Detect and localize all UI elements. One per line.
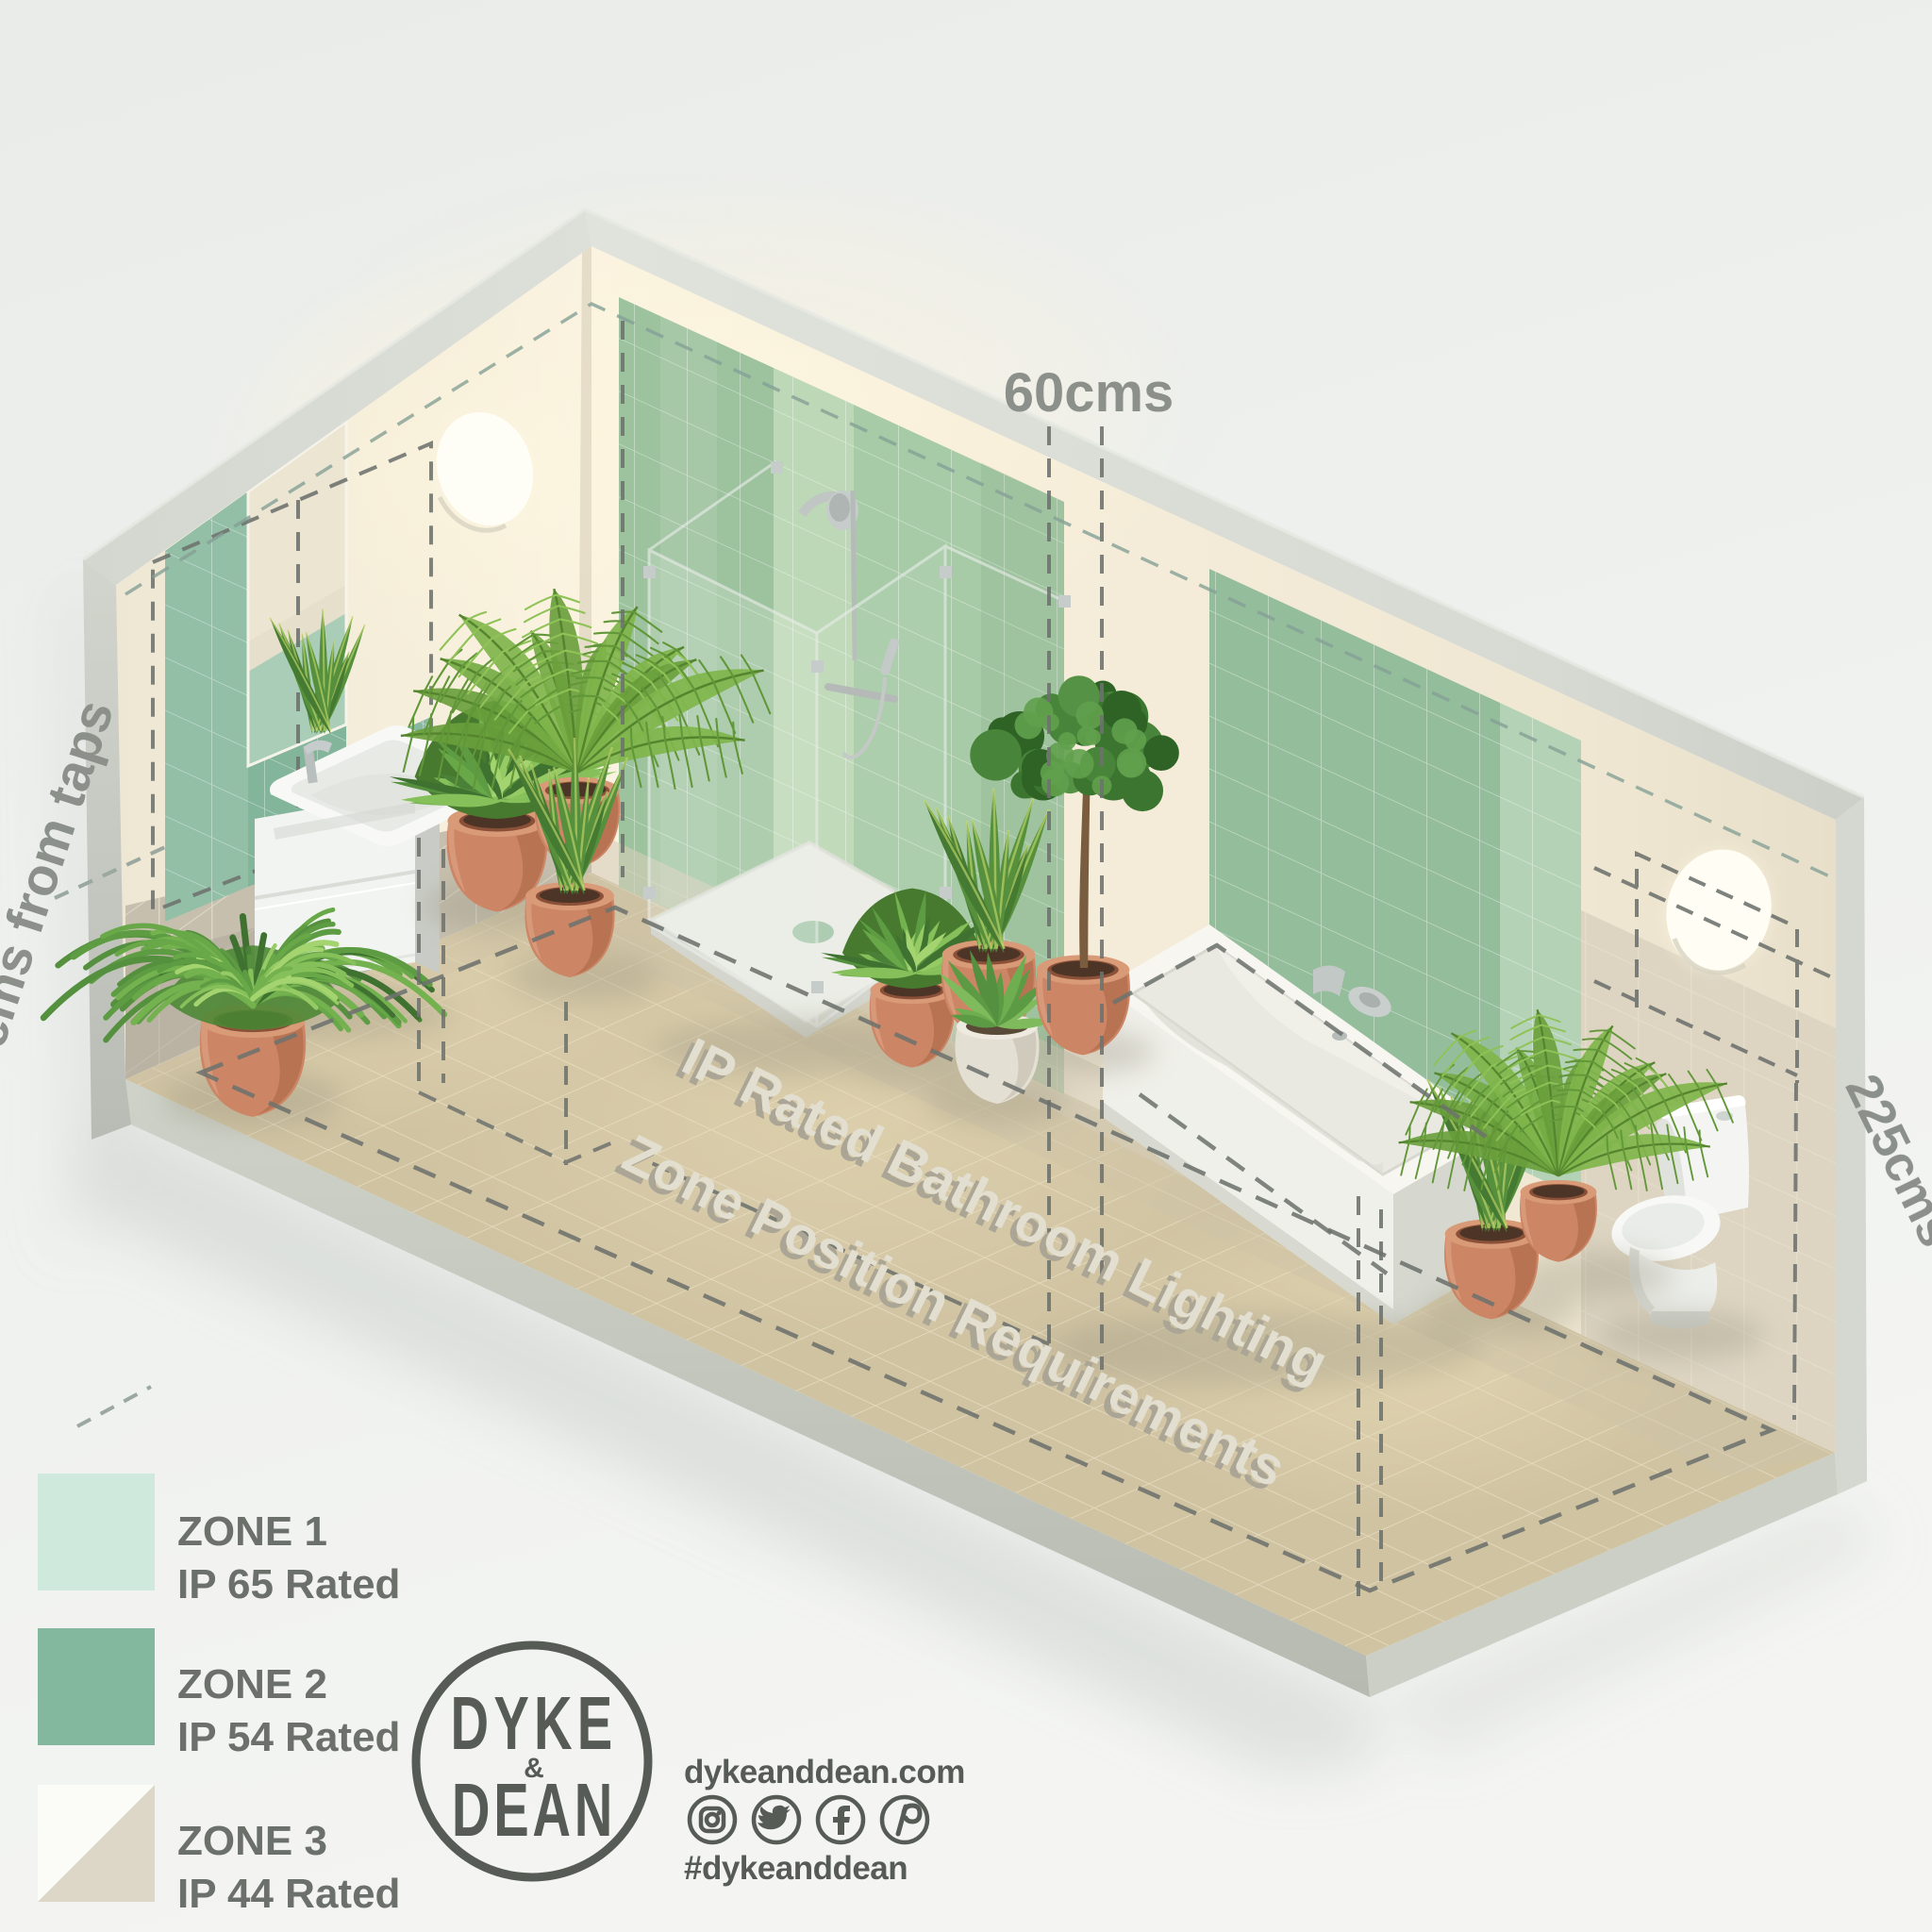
svg-text:60cms: 60cms [1004,362,1174,424]
svg-text:dykeanddean.com: dykeanddean.com [684,1754,965,1790]
svg-text:IP 65 Rated: IP 65 Rated [177,1561,400,1607]
svg-text:ZONE 2: ZONE 2 [177,1661,327,1707]
svg-text:#dykeanddean: #dykeanddean [684,1850,908,1887]
svg-text:DEAN: DEAN [452,1768,616,1852]
svg-text:ZONE 1: ZONE 1 [177,1508,327,1555]
svg-text:IP 44 Rated: IP 44 Rated [177,1871,400,1917]
svg-text:ZONE 3: ZONE 3 [177,1818,327,1864]
svg-text:IP 54 Rated: IP 54 Rated [177,1714,400,1760]
